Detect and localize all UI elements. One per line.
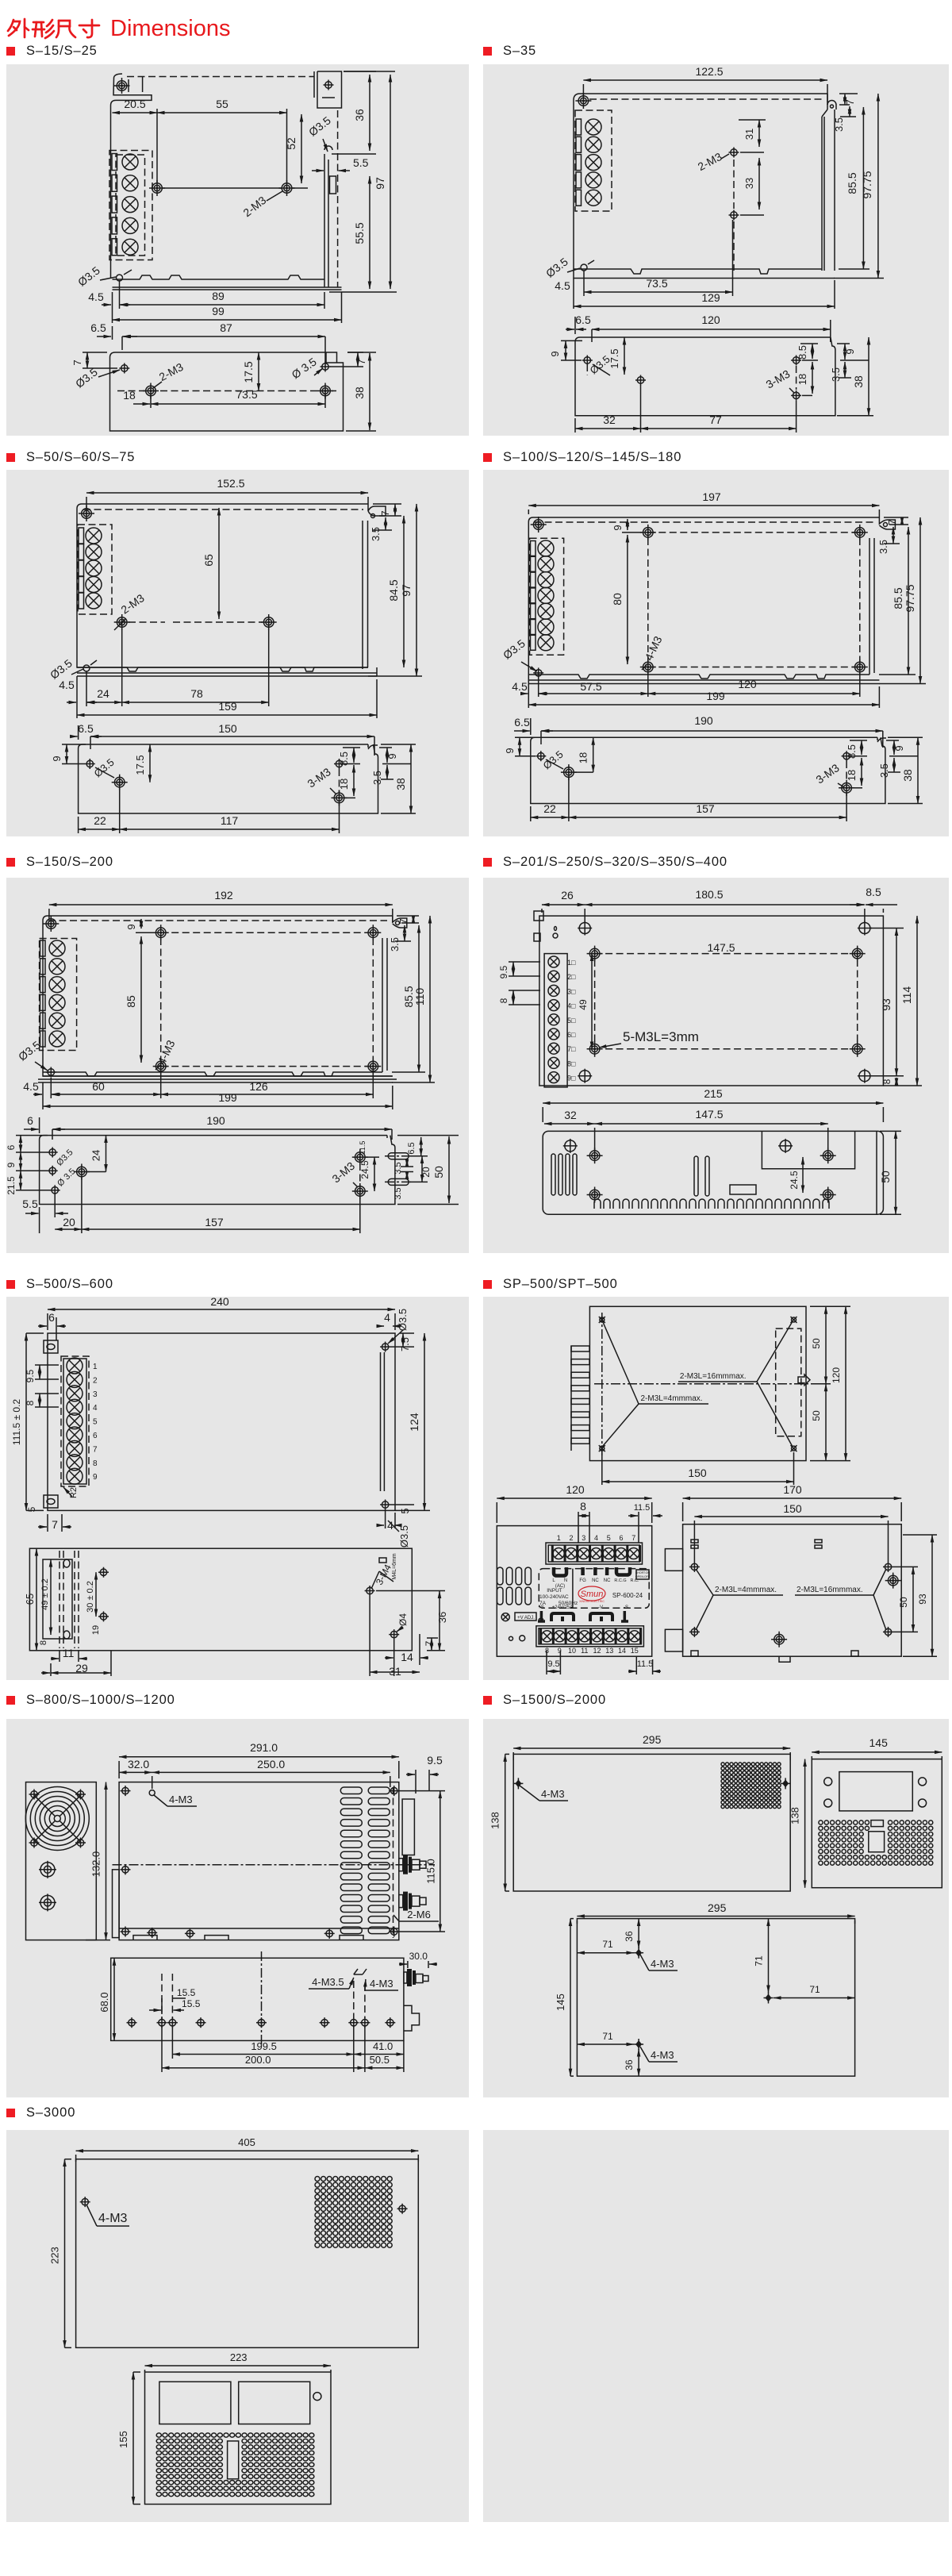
svg-text:15: 15 (631, 1647, 639, 1655)
svg-text:10: 10 (568, 1647, 576, 1655)
svg-text:38: 38 (852, 375, 865, 388)
svg-text:85: 85 (125, 995, 137, 1008)
svg-text:120: 120 (566, 1483, 585, 1496)
svg-text:R2: R2 (69, 1487, 79, 1498)
svg-text:21.5: 21.5 (6, 1176, 17, 1195)
svg-text:24.5: 24.5 (359, 1160, 370, 1179)
svg-text:9: 9 (549, 351, 561, 356)
svg-text:9: 9 (844, 348, 856, 354)
svg-text:110: 110 (413, 988, 426, 1006)
svg-text:30 ± 0.2: 30 ± 0.2 (86, 1581, 95, 1613)
svg-text:2-M3: 2-M3 (157, 360, 186, 383)
svg-text:3.5: 3.5 (393, 1187, 403, 1199)
svg-text:120: 120 (738, 678, 757, 690)
svg-text:129: 129 (701, 291, 720, 304)
svg-text:6: 6 (48, 1311, 55, 1324)
svg-text:1: 1 (557, 1534, 561, 1542)
svg-text:295: 295 (643, 1733, 662, 1746)
svg-text:22: 22 (94, 814, 106, 827)
svg-text:11.5: 11.5 (637, 1659, 654, 1669)
svg-text:Ø3.5: Ø3.5 (543, 255, 570, 279)
svg-text:Ø3.5: Ø3.5 (397, 1309, 409, 1331)
svg-text:Ø3.5: Ø3.5 (55, 1148, 75, 1167)
svg-text:3.5: 3.5 (830, 367, 842, 382)
svg-text:97.75: 97.75 (861, 171, 873, 198)
svg-text:2-M3: 2-M3 (118, 591, 146, 617)
svg-text:Ø 3.5: Ø 3.5 (56, 1167, 78, 1189)
svg-text:2-M6: 2-M6 (407, 1909, 431, 1920)
svg-text:50: 50 (811, 1338, 822, 1349)
svg-text:3-M3: 3-M3 (329, 1159, 357, 1186)
svg-text:Ø3.5: Ø3.5 (75, 263, 102, 288)
svg-text:71: 71 (809, 1984, 820, 1995)
svg-text:31: 31 (743, 129, 755, 140)
svg-text:85.5: 85.5 (846, 172, 858, 194)
svg-text:31: 31 (389, 1665, 401, 1678)
svg-text:32.0: 32.0 (128, 1758, 149, 1771)
svg-text:17.5: 17.5 (242, 361, 255, 383)
svg-text:6.5: 6.5 (575, 313, 591, 326)
svg-text:55: 55 (216, 98, 228, 110)
svg-text:32: 32 (603, 413, 616, 426)
svg-text:71: 71 (754, 1955, 765, 1967)
svg-text:223: 223 (49, 2247, 61, 2264)
svg-text:5: 5 (93, 1418, 98, 1427)
svg-text:9: 9 (51, 755, 63, 761)
svg-text:33: 33 (743, 178, 755, 189)
svg-text:INPUT: INPUT (547, 1588, 562, 1594)
svg-text:36: 36 (436, 1612, 448, 1623)
svg-text:XINGHE ELECTRIC: XINGHE ELECTRIC (579, 1600, 605, 1603)
svg-text:22: 22 (543, 802, 556, 815)
svg-text:78: 78 (190, 687, 203, 700)
svg-text:4-M3: 4-M3 (651, 1958, 674, 1970)
svg-text:18: 18 (123, 389, 136, 402)
svg-text:4: 4 (594, 1534, 598, 1542)
svg-text:49 ± 0.2: 49 ± 0.2 (40, 1578, 50, 1610)
svg-text:147.5: 147.5 (707, 941, 735, 954)
svg-text:97: 97 (400, 584, 413, 597)
svg-text:192: 192 (214, 889, 233, 902)
svg-text:197: 197 (702, 490, 721, 503)
svg-text:145: 145 (869, 1736, 889, 1749)
svg-text:36: 36 (353, 109, 366, 121)
svg-text:5: 5 (26, 1506, 37, 1512)
svg-text:9.5: 9.5 (498, 965, 509, 978)
svg-text:3.5: 3.5 (878, 763, 890, 778)
svg-text:4-M3: 4-M3 (642, 634, 664, 663)
svg-text:6□: 6□ (567, 1031, 576, 1039)
svg-text:50: 50 (879, 1171, 892, 1183)
svg-text:8.5: 8.5 (846, 744, 858, 759)
svg-text:N: N (564, 1578, 567, 1583)
svg-text:49: 49 (578, 999, 589, 1010)
svg-text:68.0: 68.0 (98, 1992, 110, 2012)
svg-text:6: 6 (93, 1432, 98, 1440)
svg-text:120: 120 (701, 313, 720, 326)
svg-text:157: 157 (696, 802, 715, 815)
svg-text:4.5: 4.5 (88, 290, 104, 303)
svg-text:2-M3: 2-M3 (696, 150, 724, 173)
svg-text:9: 9 (504, 748, 516, 753)
svg-text:3.5: 3.5 (877, 540, 889, 554)
svg-text:2-M3L=4mmmax.: 2-M3L=4mmmax. (715, 1586, 777, 1594)
svg-text:Smun: Smun (581, 1590, 604, 1599)
svg-text:4-M3: 4-M3 (651, 2049, 674, 2061)
svg-text:9: 9 (93, 1473, 98, 1482)
svg-text:7.5: 7.5 (399, 1337, 411, 1351)
svg-text:8: 8 (93, 1459, 98, 1468)
svg-text:3-M3: 3-M3 (813, 761, 841, 786)
svg-text:20: 20 (420, 1167, 432, 1178)
svg-text:Ø3.5: Ø3.5 (306, 113, 333, 138)
svg-text:199: 199 (706, 690, 725, 702)
svg-text:120: 120 (831, 1367, 842, 1383)
svg-text:50: 50 (811, 1410, 822, 1421)
svg-text:5□: 5□ (567, 1017, 576, 1025)
svg-text:199: 199 (218, 1091, 237, 1104)
svg-text:9.5: 9.5 (427, 1754, 443, 1767)
svg-text:147.5: 147.5 (695, 1108, 723, 1121)
svg-text:240: 240 (210, 1297, 229, 1308)
svg-text:405: 405 (238, 2136, 255, 2148)
svg-text:8.5: 8.5 (797, 345, 808, 359)
svg-text:7: 7 (424, 1640, 435, 1646)
svg-text:77: 77 (709, 413, 722, 426)
svg-text:11: 11 (63, 1647, 75, 1659)
svg-text:7: 7 (397, 918, 409, 924)
svg-text:99: 99 (212, 305, 225, 317)
svg-text:8: 8 (881, 1078, 892, 1084)
svg-text:4-M3: 4-M3 (541, 1788, 565, 1800)
svg-text:3.5: 3.5 (370, 527, 382, 541)
svg-text:117: 117 (221, 814, 239, 827)
svg-text:73.5: 73.5 (236, 388, 257, 401)
svg-text:2-M3: 2-M3 (240, 194, 268, 219)
svg-text:80: 80 (611, 593, 624, 606)
svg-text:+V ADJ.: +V ADJ. (517, 1616, 535, 1621)
svg-text:84.5: 84.5 (387, 579, 400, 601)
svg-text:11.5: 11.5 (359, 1141, 367, 1155)
svg-text:3.5: 3.5 (389, 937, 401, 952)
svg-text:190: 190 (206, 1114, 225, 1127)
svg-text:SHORT:ON: SHORT:ON (635, 1571, 650, 1574)
svg-text:3□: 3□ (567, 987, 576, 995)
svg-text:9□: 9□ (567, 1075, 576, 1082)
svg-text:114: 114 (900, 986, 913, 1005)
svg-text:26: 26 (561, 889, 574, 902)
svg-text:4: 4 (93, 1404, 98, 1413)
svg-text:20.5: 20.5 (124, 98, 145, 110)
svg-text:L: L (552, 1578, 555, 1583)
svg-text:4.5: 4.5 (59, 679, 75, 691)
svg-text:87: 87 (220, 321, 232, 334)
svg-text:4□: 4□ (567, 1002, 576, 1010)
svg-text:8.5: 8.5 (338, 752, 350, 766)
svg-text:55.5: 55.5 (353, 222, 366, 244)
svg-text:8□: 8□ (567, 1059, 576, 1067)
svg-text:19: 19 (91, 1625, 101, 1635)
svg-text:9: 9 (612, 525, 624, 530)
svg-text:155: 155 (117, 2431, 129, 2448)
svg-text:-V: -V (598, 1605, 603, 1610)
svg-text:9: 9 (6, 1162, 17, 1167)
svg-text:9: 9 (125, 924, 137, 929)
svg-text:180.5: 180.5 (695, 888, 723, 901)
svg-text:Ø3.5: Ø3.5 (73, 365, 100, 390)
svg-text:FG: FG (579, 1578, 586, 1583)
svg-text:52: 52 (285, 137, 297, 150)
svg-text:9: 9 (893, 745, 905, 751)
svg-text:3-M3: 3-M3 (305, 765, 332, 790)
svg-text:2-M3L=16mmmax.: 2-M3L=16mmmax. (797, 1586, 863, 1594)
svg-text:7: 7 (844, 99, 856, 105)
svg-text:8: 8 (39, 1640, 48, 1645)
svg-text:250.0: 250.0 (257, 1758, 285, 1771)
svg-text:126: 126 (249, 1080, 268, 1093)
svg-text:152.5: 152.5 (217, 477, 244, 490)
svg-text:Ø4: Ø4 (397, 1613, 409, 1626)
svg-text:18: 18 (797, 374, 808, 385)
svg-text:11.5: 11.5 (634, 1503, 651, 1513)
svg-text:Ø3.5: Ø3.5 (501, 636, 528, 661)
svg-text:295: 295 (708, 1901, 727, 1914)
svg-text:93: 93 (917, 1594, 928, 1605)
svg-text:138: 138 (489, 1812, 501, 1829)
svg-text:38: 38 (353, 386, 366, 399)
svg-text:7: 7 (52, 1518, 58, 1531)
svg-text:-S: -S (624, 1605, 628, 1610)
svg-text:4-M3: 4-M3 (169, 1794, 193, 1805)
svg-text:97: 97 (374, 177, 386, 190)
svg-text:4-M3: 4-M3 (370, 1978, 393, 1990)
svg-text:89: 89 (212, 290, 225, 302)
svg-text:30.0: 30.0 (409, 1951, 428, 1962)
svg-text:17.5: 17.5 (608, 348, 620, 368)
svg-text:9.5: 9.5 (547, 1659, 559, 1669)
svg-text:Ø3.5: Ø3.5 (398, 1525, 410, 1548)
svg-text:65: 65 (24, 1594, 36, 1605)
svg-text:NC: NC (604, 1578, 611, 1583)
svg-text:15.5: 15.5 (177, 1987, 196, 1998)
svg-text:170: 170 (783, 1483, 802, 1496)
svg-text:5.5: 5.5 (353, 156, 369, 169)
svg-text:157: 157 (205, 1216, 224, 1228)
svg-text:57.5: 57.5 (580, 680, 601, 693)
svg-text:190: 190 (694, 714, 713, 727)
svg-text:6.5: 6.5 (407, 1142, 416, 1154)
svg-text:6: 6 (27, 1114, 33, 1127)
svg-text:4-M3: 4-M3 (155, 1038, 177, 1067)
svg-text:20: 20 (63, 1216, 75, 1228)
svg-text:6: 6 (619, 1534, 623, 1542)
svg-text:223: 223 (230, 2351, 248, 2363)
svg-text:199.5: 199.5 (251, 2040, 277, 2052)
svg-text:4.5: 4.5 (512, 680, 528, 693)
svg-text:2-M3L=4mmmax.: 2-M3L=4mmmax. (641, 1394, 703, 1403)
svg-text:3-M3: 3-M3 (764, 367, 793, 391)
svg-text:38: 38 (394, 778, 407, 790)
svg-text:14: 14 (401, 1651, 413, 1663)
svg-text:5-M3L=3mm: 5-M3L=3mm (623, 1029, 699, 1044)
svg-text:4: 4 (384, 1311, 390, 1324)
svg-text:M4L=6mm: M4L=6mm (392, 1553, 397, 1579)
svg-text:215: 215 (704, 1087, 723, 1100)
svg-text:71: 71 (602, 2031, 613, 2042)
svg-text:5: 5 (607, 1534, 611, 1542)
svg-text:1□: 1□ (567, 959, 576, 967)
svg-text:SP-600-24: SP-600-24 (612, 1592, 643, 1599)
svg-text:4-M3: 4-M3 (98, 2212, 128, 2225)
svg-text:+S: +S (538, 1605, 544, 1610)
svg-text:NC: NC (592, 1578, 599, 1583)
svg-text:15.5: 15.5 (182, 1998, 201, 2009)
svg-text:4.5: 4.5 (555, 279, 570, 292)
svg-text:115.0: 115.0 (425, 1859, 437, 1884)
svg-text:3.5: 3.5 (833, 117, 845, 132)
svg-text:122.5: 122.5 (695, 65, 723, 78)
svg-text:Ø 3.5: Ø 3.5 (290, 355, 319, 381)
svg-text:12: 12 (593, 1647, 601, 1655)
svg-text:7: 7 (631, 1534, 635, 1542)
svg-text:85.5: 85.5 (892, 587, 904, 609)
svg-text:3.5: 3.5 (371, 771, 383, 785)
svg-text:2: 2 (93, 1376, 98, 1385)
svg-text:150: 150 (218, 722, 237, 735)
svg-text:38: 38 (901, 769, 914, 782)
svg-text:9: 9 (386, 753, 398, 759)
svg-text:4-M3.5: 4-M3.5 (312, 1976, 344, 1988)
svg-text:97.75: 97.75 (904, 584, 916, 612)
svg-text:159: 159 (218, 700, 237, 713)
svg-text:6.5: 6.5 (90, 321, 106, 334)
svg-text:50: 50 (432, 1166, 445, 1178)
svg-text:5.5: 5.5 (22, 1198, 38, 1210)
svg-text:8.5: 8.5 (866, 886, 881, 898)
svg-text:18: 18 (846, 770, 858, 781)
svg-text:65: 65 (202, 554, 215, 567)
svg-text:17.5: 17.5 (134, 755, 146, 775)
svg-text:14: 14 (618, 1647, 626, 1655)
svg-text:6.5: 6.5 (78, 722, 94, 735)
svg-text:8: 8 (498, 998, 509, 1003)
svg-text:200.0: 200.0 (245, 2054, 271, 2066)
svg-text:73.5: 73.5 (646, 277, 667, 290)
svg-text:132.0: 132.0 (90, 1851, 102, 1878)
svg-text:6.5: 6.5 (514, 716, 530, 729)
svg-text:13: 13 (605, 1647, 613, 1655)
svg-text:24: 24 (97, 687, 109, 700)
svg-text:+24V/25A: +24V/25A (552, 1605, 574, 1610)
svg-text:93: 93 (880, 998, 892, 1011)
svg-text:7□: 7□ (567, 1045, 576, 1053)
svg-text:24: 24 (90, 1150, 102, 1161)
svg-text:1: 1 (93, 1363, 98, 1371)
svg-text:6: 6 (6, 1144, 17, 1150)
svg-text:36: 36 (624, 2059, 635, 2070)
svg-text:24.5: 24.5 (789, 1171, 800, 1190)
svg-text:145: 145 (555, 1994, 566, 2011)
svg-text:11: 11 (581, 1647, 588, 1655)
svg-text:138: 138 (789, 1807, 801, 1824)
svg-text:50.5: 50.5 (370, 2054, 390, 2066)
svg-text:2-M3L=16mmmax.: 2-M3L=16mmmax. (680, 1372, 747, 1381)
svg-text:111.5 ± 0.2: 111.5 ± 0.2 (11, 1399, 22, 1446)
svg-text:124: 124 (408, 1413, 420, 1432)
svg-text:R.C.G: R.C.G (614, 1578, 626, 1583)
svg-text:32: 32 (564, 1109, 577, 1121)
svg-text:4.5: 4.5 (23, 1080, 39, 1093)
svg-text:36: 36 (624, 1931, 635, 1942)
svg-text:150: 150 (783, 1502, 802, 1515)
svg-text:18: 18 (578, 752, 589, 763)
svg-text:100-240VAC: 100-240VAC (539, 1594, 569, 1600)
svg-text:291.0: 291.0 (250, 1741, 278, 1754)
svg-text:8: 8 (580, 1500, 586, 1513)
svg-text:2: 2 (569, 1534, 573, 1542)
svg-text:OPEN:OFF: OPEN:OFF (635, 1575, 650, 1578)
svg-text:3: 3 (582, 1534, 585, 1542)
svg-text:150: 150 (688, 1467, 707, 1479)
svg-text:7: 7 (71, 359, 83, 365)
svg-text:18: 18 (338, 779, 350, 790)
svg-text:50: 50 (898, 1597, 909, 1608)
svg-text:7: 7 (886, 519, 898, 525)
svg-text:7: 7 (93, 1445, 98, 1454)
svg-text:3.5: 3.5 (393, 1162, 403, 1174)
svg-text:7: 7 (355, 359, 367, 364)
svg-text:60: 60 (92, 1080, 105, 1093)
svg-text:Ø3.5: Ø3.5 (48, 656, 75, 681)
svg-text:2□: 2□ (567, 973, 576, 981)
svg-text:7: 7 (379, 510, 391, 516)
svg-text:41.0: 41.0 (373, 2040, 393, 2052)
svg-text:5: 5 (399, 1508, 411, 1513)
svg-text:3: 3 (93, 1390, 98, 1399)
svg-text:71: 71 (602, 1939, 613, 1950)
